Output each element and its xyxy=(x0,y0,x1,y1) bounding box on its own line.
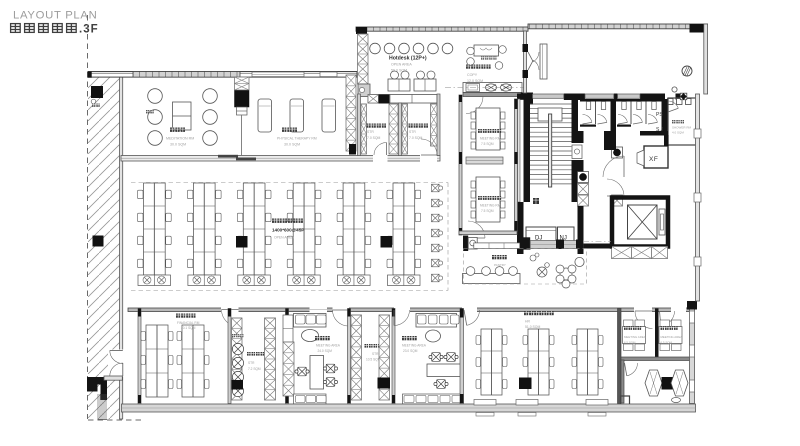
svg-text:XF: XF xyxy=(649,156,658,163)
svg-text:1400*600@45P: 1400*600@45P xyxy=(272,228,304,233)
svg-text:STR: STR xyxy=(409,130,416,134)
svg-text:OPEN AREA: OPEN AREA xyxy=(391,63,412,67)
svg-text:SHOWER RM: SHOWER RM xyxy=(672,126,692,130)
svg-text:STR: STR xyxy=(248,361,255,365)
svg-text:MEETING RM: MEETING RM xyxy=(480,204,501,208)
svg-text:.3F: .3F xyxy=(79,24,99,36)
svg-text:12.0 SQM: 12.0 SQM xyxy=(467,79,483,83)
svg-text:COPY: COPY xyxy=(467,73,478,77)
svg-text:MEETING AREA: MEETING AREA xyxy=(624,335,646,339)
svg-text:7.5 SQM: 7.5 SQM xyxy=(481,142,494,146)
svg-text:MEETING RM: MEETING RM xyxy=(480,137,501,141)
svg-text:STR: STR xyxy=(372,352,379,356)
svg-text:LAYOUT PLAN: LAYOUT PLAN xyxy=(13,10,98,22)
svg-text:PHYSICAL THERAPY RM: PHYSICAL THERAPY RM xyxy=(277,137,317,141)
svg-text:STR: STR xyxy=(367,130,374,134)
svg-text:OPEN AREA: OPEN AREA xyxy=(274,236,294,240)
svg-text:4.0 SQM: 4.0 SQM xyxy=(672,131,684,135)
svg-text:MEDITATION RM: MEDITATION RM xyxy=(166,137,194,141)
svg-text:6.5 SQM: 6.5 SQM xyxy=(624,341,636,345)
svg-text:PS: PS xyxy=(656,112,663,118)
svg-text:HR: HR xyxy=(525,320,530,324)
svg-text:7.0 SQM: 7.0 SQM xyxy=(409,136,423,140)
svg-text:7.0 SQM: 7.0 SQM xyxy=(367,136,381,140)
svg-text:7.2 SQM: 7.2 SQM xyxy=(248,367,261,371)
svg-text:30.0 SQM: 30.0 SQM xyxy=(170,143,186,147)
svg-text:30.0 SQM: 30.0 SQM xyxy=(284,143,300,147)
svg-text:10.5 SQM: 10.5 SQM xyxy=(366,358,381,362)
svg-text:Hotdesk (12P+): Hotdesk (12P+) xyxy=(389,56,427,62)
svg-text:23.0 SQM: 23.0 SQM xyxy=(403,349,418,353)
svg-text:MEETING AREA: MEETING AREA xyxy=(316,344,341,348)
svg-text:20.1 SQM: 20.1 SQM xyxy=(181,326,196,330)
svg-text:MEETING AREA: MEETING AREA xyxy=(402,344,427,348)
svg-text:MEETING AREA: MEETING AREA xyxy=(661,335,683,339)
svg-text:24.0 SQM: 24.0 SQM xyxy=(318,349,333,353)
svg-text:7.5 SQM: 7.5 SQM xyxy=(481,209,494,213)
svg-text:6.5 SQM: 6.5 SQM xyxy=(661,341,673,345)
svg-text:FINANCIAL RM: FINANCIAL RM xyxy=(177,321,200,325)
svg-text:51.0 SQM: 51.0 SQM xyxy=(525,325,540,329)
